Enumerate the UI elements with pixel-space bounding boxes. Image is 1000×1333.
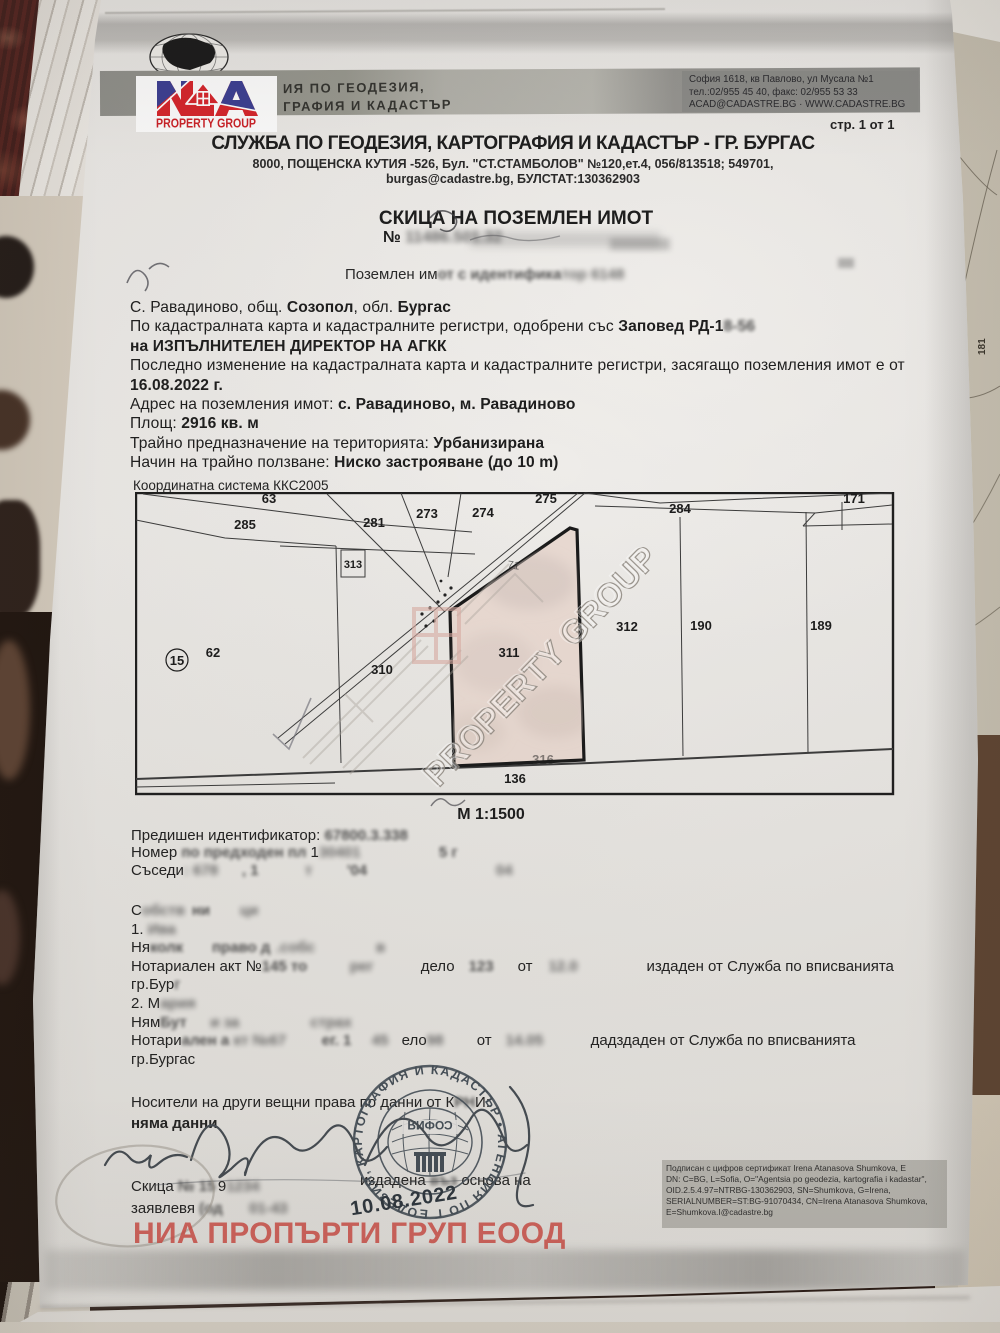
svg-text:316: 316 [532, 752, 554, 767]
svg-text:281: 281 [363, 515, 385, 530]
svg-text:274: 274 [472, 505, 494, 520]
svg-text:273: 273 [416, 506, 438, 521]
svg-text:71: 71 [507, 559, 521, 573]
svg-text:275: 275 [535, 492, 557, 506]
svg-text:313: 313 [344, 559, 362, 571]
svg-text:284: 284 [669, 501, 691, 516]
svg-text:PROPERTY GROUP: PROPERTY GROUP [156, 116, 256, 131]
svg-text:63: 63 [262, 492, 276, 506]
svg-text:136: 136 [504, 771, 526, 786]
svg-text:311: 311 [499, 645, 520, 660]
svg-text:171: 171 [843, 492, 865, 506]
svg-text:285: 285 [234, 517, 256, 532]
svg-text:15: 15 [170, 653, 184, 668]
svg-text:310: 310 [371, 662, 393, 677]
svg-text:181: 181 [977, 338, 988, 355]
svg-text:189: 189 [810, 618, 832, 633]
svg-text:62: 62 [206, 645, 220, 660]
svg-text:312: 312 [616, 619, 638, 634]
svg-text:190: 190 [690, 618, 712, 633]
